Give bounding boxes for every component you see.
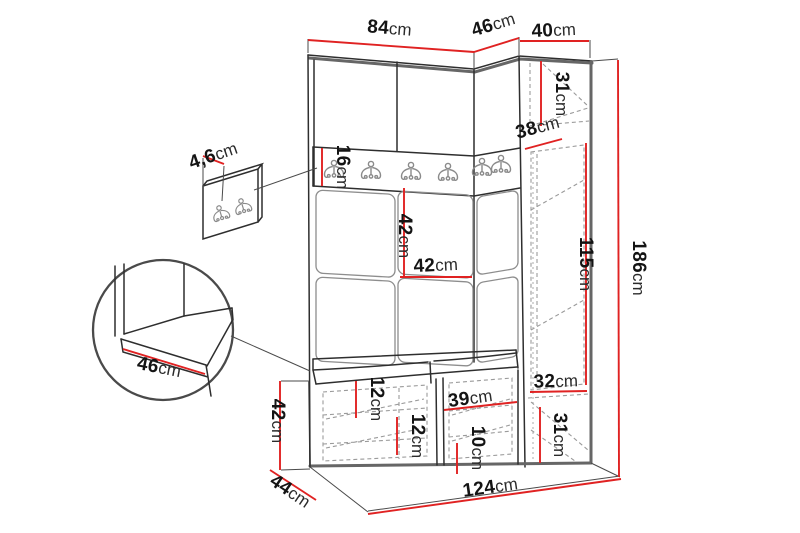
dim-label-10: 10cm [467,426,488,470]
dim-label-12-mid: 12cm [407,414,428,458]
detail-circle-outline [93,260,233,400]
dim-label-42-horizontal: 42cm [413,254,458,277]
dim-label-16: 16cm [332,145,353,189]
dim-label-31-bottom: 31cm [549,413,570,457]
dim-label-115: 115cm [575,237,596,291]
background [0,0,800,533]
dim-label-84: 84cm [366,16,412,40]
dim-label-186: 186cm [628,240,649,295]
diagram-canvas: 84cm 46cm 40cm 186cm 31cm 38cm 115cm 32c… [0,0,800,533]
dim-label-12-top: 12cm [366,377,387,421]
furniture-dimension-diagram: 84cm 46cm 40cm 186cm 31cm 38cm 115cm 32c… [0,0,800,533]
bench-left-edge [309,381,310,467]
dim-label-42-vertical: 42cm [394,214,415,258]
dim-label-31-top: 31cm [551,72,572,116]
dim-label-32: 32cm [533,370,578,393]
dim-line-186 [618,60,619,477]
dim-label-42-left: 42cm [267,399,288,443]
dim-label-40: 40cm [531,19,576,42]
